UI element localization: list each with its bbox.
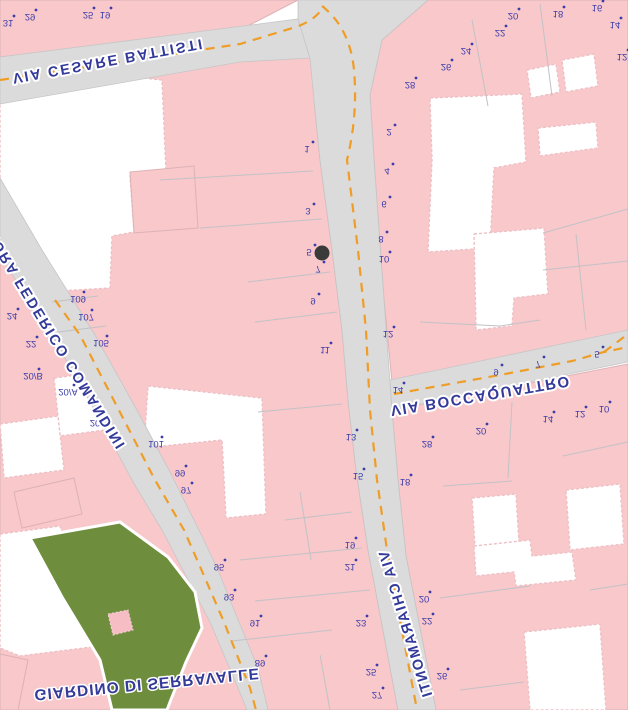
address-dot bbox=[609, 401, 612, 404]
house-number: 22 bbox=[26, 338, 37, 349]
address-dot bbox=[106, 335, 109, 338]
house-number: 97 bbox=[181, 484, 192, 495]
house-number: 25 bbox=[83, 9, 94, 20]
address-dot bbox=[36, 336, 39, 339]
address-dot bbox=[392, 163, 395, 166]
address-dot bbox=[260, 615, 263, 618]
address-dot bbox=[486, 423, 489, 426]
address-dot bbox=[330, 342, 333, 345]
courtyard-area bbox=[566, 484, 624, 550]
house-number: 1 bbox=[304, 143, 309, 154]
address-dot bbox=[185, 465, 188, 468]
address-dot bbox=[389, 251, 392, 254]
address-dot bbox=[323, 261, 326, 264]
address-dot bbox=[366, 615, 369, 618]
house-number: 95 bbox=[214, 561, 225, 572]
house-number: 26 bbox=[437, 670, 448, 681]
house-number: 7 bbox=[315, 263, 320, 274]
map-canvas[interactable]: 3129251928262422201816141213579111315192… bbox=[0, 0, 628, 710]
house-number: 24 bbox=[461, 45, 472, 56]
house-number: 26 bbox=[441, 61, 452, 72]
address-dot bbox=[451, 59, 454, 62]
address-dot bbox=[518, 8, 521, 11]
building-block bbox=[130, 166, 198, 233]
address-dot bbox=[35, 9, 38, 12]
house-number: 99 bbox=[175, 467, 186, 478]
house-number: 21 bbox=[345, 561, 356, 572]
house-number: 12 bbox=[383, 328, 394, 339]
address-dot bbox=[312, 141, 315, 144]
address-dot bbox=[447, 668, 450, 671]
address-dot bbox=[382, 687, 385, 690]
address-dot bbox=[83, 291, 86, 294]
house-number: 28 bbox=[422, 438, 433, 449]
address-dot bbox=[501, 364, 504, 367]
house-number: 20 bbox=[419, 593, 430, 604]
garden-building bbox=[108, 610, 133, 635]
house-number: 91 bbox=[250, 617, 261, 628]
map-frame: 3129251928262422201816141213579111315192… bbox=[0, 0, 628, 710]
house-number: 5 bbox=[594, 348, 599, 359]
address-dot bbox=[543, 356, 546, 359]
address-dot bbox=[13, 15, 16, 18]
address-dot bbox=[191, 482, 194, 485]
house-number: 15 bbox=[353, 470, 364, 481]
address-dot bbox=[471, 43, 474, 46]
address-dot bbox=[161, 436, 164, 439]
house-number: 109 bbox=[70, 293, 86, 304]
house-number: 93 bbox=[224, 591, 235, 602]
address-dot bbox=[394, 124, 397, 127]
address-dot bbox=[620, 17, 623, 20]
address-dot bbox=[356, 429, 359, 432]
house-number: 14 bbox=[543, 413, 554, 424]
address-dot bbox=[318, 293, 321, 296]
house-number: 31 bbox=[3, 17, 14, 28]
house-number: 20/B bbox=[23, 370, 43, 381]
house-number: 10 bbox=[379, 253, 390, 264]
house-number: 4 bbox=[384, 165, 389, 176]
address-dot bbox=[363, 468, 366, 471]
address-dot bbox=[429, 591, 432, 594]
house-number: 5 bbox=[306, 246, 311, 257]
house-number: 7 bbox=[535, 358, 540, 369]
address-dot bbox=[553, 411, 556, 414]
house-number: 9 bbox=[310, 295, 315, 306]
house-number: 2 bbox=[386, 126, 391, 137]
address-dot bbox=[91, 309, 94, 312]
address-dot bbox=[602, 346, 605, 349]
courtyard-area bbox=[562, 54, 598, 92]
address-dot bbox=[432, 436, 435, 439]
house-number: 13 bbox=[346, 431, 357, 442]
address-dot bbox=[563, 6, 566, 9]
address-dot bbox=[17, 308, 20, 311]
address-dot bbox=[432, 613, 435, 616]
address-dot bbox=[355, 537, 358, 540]
house-number: 24 bbox=[7, 310, 18, 321]
house-number: 12 bbox=[617, 51, 628, 62]
house-number: 10 bbox=[599, 403, 610, 414]
address-dot bbox=[376, 664, 379, 667]
house-number: 6 bbox=[381, 198, 386, 209]
house-number: 22 bbox=[495, 27, 506, 38]
house-number: 3 bbox=[305, 205, 310, 216]
house-number: 20 bbox=[508, 10, 519, 21]
address-dot bbox=[38, 368, 41, 371]
house-number: 11 bbox=[320, 344, 330, 355]
courtyard-area bbox=[524, 624, 606, 710]
house-number: 20 bbox=[476, 425, 487, 436]
house-number: 22 bbox=[422, 615, 433, 626]
address-dot bbox=[410, 474, 413, 477]
address-dot bbox=[403, 382, 406, 385]
address-dot bbox=[585, 406, 588, 409]
house-number: 18 bbox=[400, 476, 411, 487]
courtyard-area bbox=[527, 64, 560, 98]
address-dot bbox=[505, 25, 508, 28]
house-number: 12 bbox=[575, 408, 586, 419]
address-dot bbox=[265, 655, 268, 658]
house-number: 105 bbox=[93, 337, 109, 348]
house-number: 18 bbox=[553, 8, 564, 19]
house-number: 28 bbox=[405, 79, 416, 90]
address-dot bbox=[393, 326, 396, 329]
house-number: 19 bbox=[100, 9, 111, 20]
house-number: 25 bbox=[366, 666, 377, 677]
address-dot bbox=[355, 559, 358, 562]
house-number: 27 bbox=[372, 689, 383, 700]
house-number: 101 bbox=[148, 438, 164, 449]
address-dot bbox=[386, 231, 389, 234]
house-number: 19 bbox=[345, 539, 356, 550]
house-number: 16 bbox=[592, 2, 603, 13]
map-marker[interactable] bbox=[315, 246, 330, 261]
house-number: 107 bbox=[78, 311, 94, 322]
courtyard-area bbox=[0, 416, 64, 478]
house-number: 23 bbox=[356, 617, 367, 628]
address-dot bbox=[313, 203, 316, 206]
address-dot bbox=[234, 589, 237, 592]
house-number: 14 bbox=[393, 384, 404, 395]
address-dot bbox=[224, 559, 227, 562]
address-dot bbox=[415, 77, 418, 80]
address-dot bbox=[389, 196, 392, 199]
house-number: 9 bbox=[493, 366, 498, 377]
house-number: 14 bbox=[610, 19, 621, 30]
house-number: 29 bbox=[25, 11, 36, 22]
address-dot bbox=[110, 7, 113, 10]
address-dot bbox=[314, 244, 317, 247]
address-dot bbox=[93, 7, 96, 10]
house-number: 8 bbox=[378, 233, 383, 244]
